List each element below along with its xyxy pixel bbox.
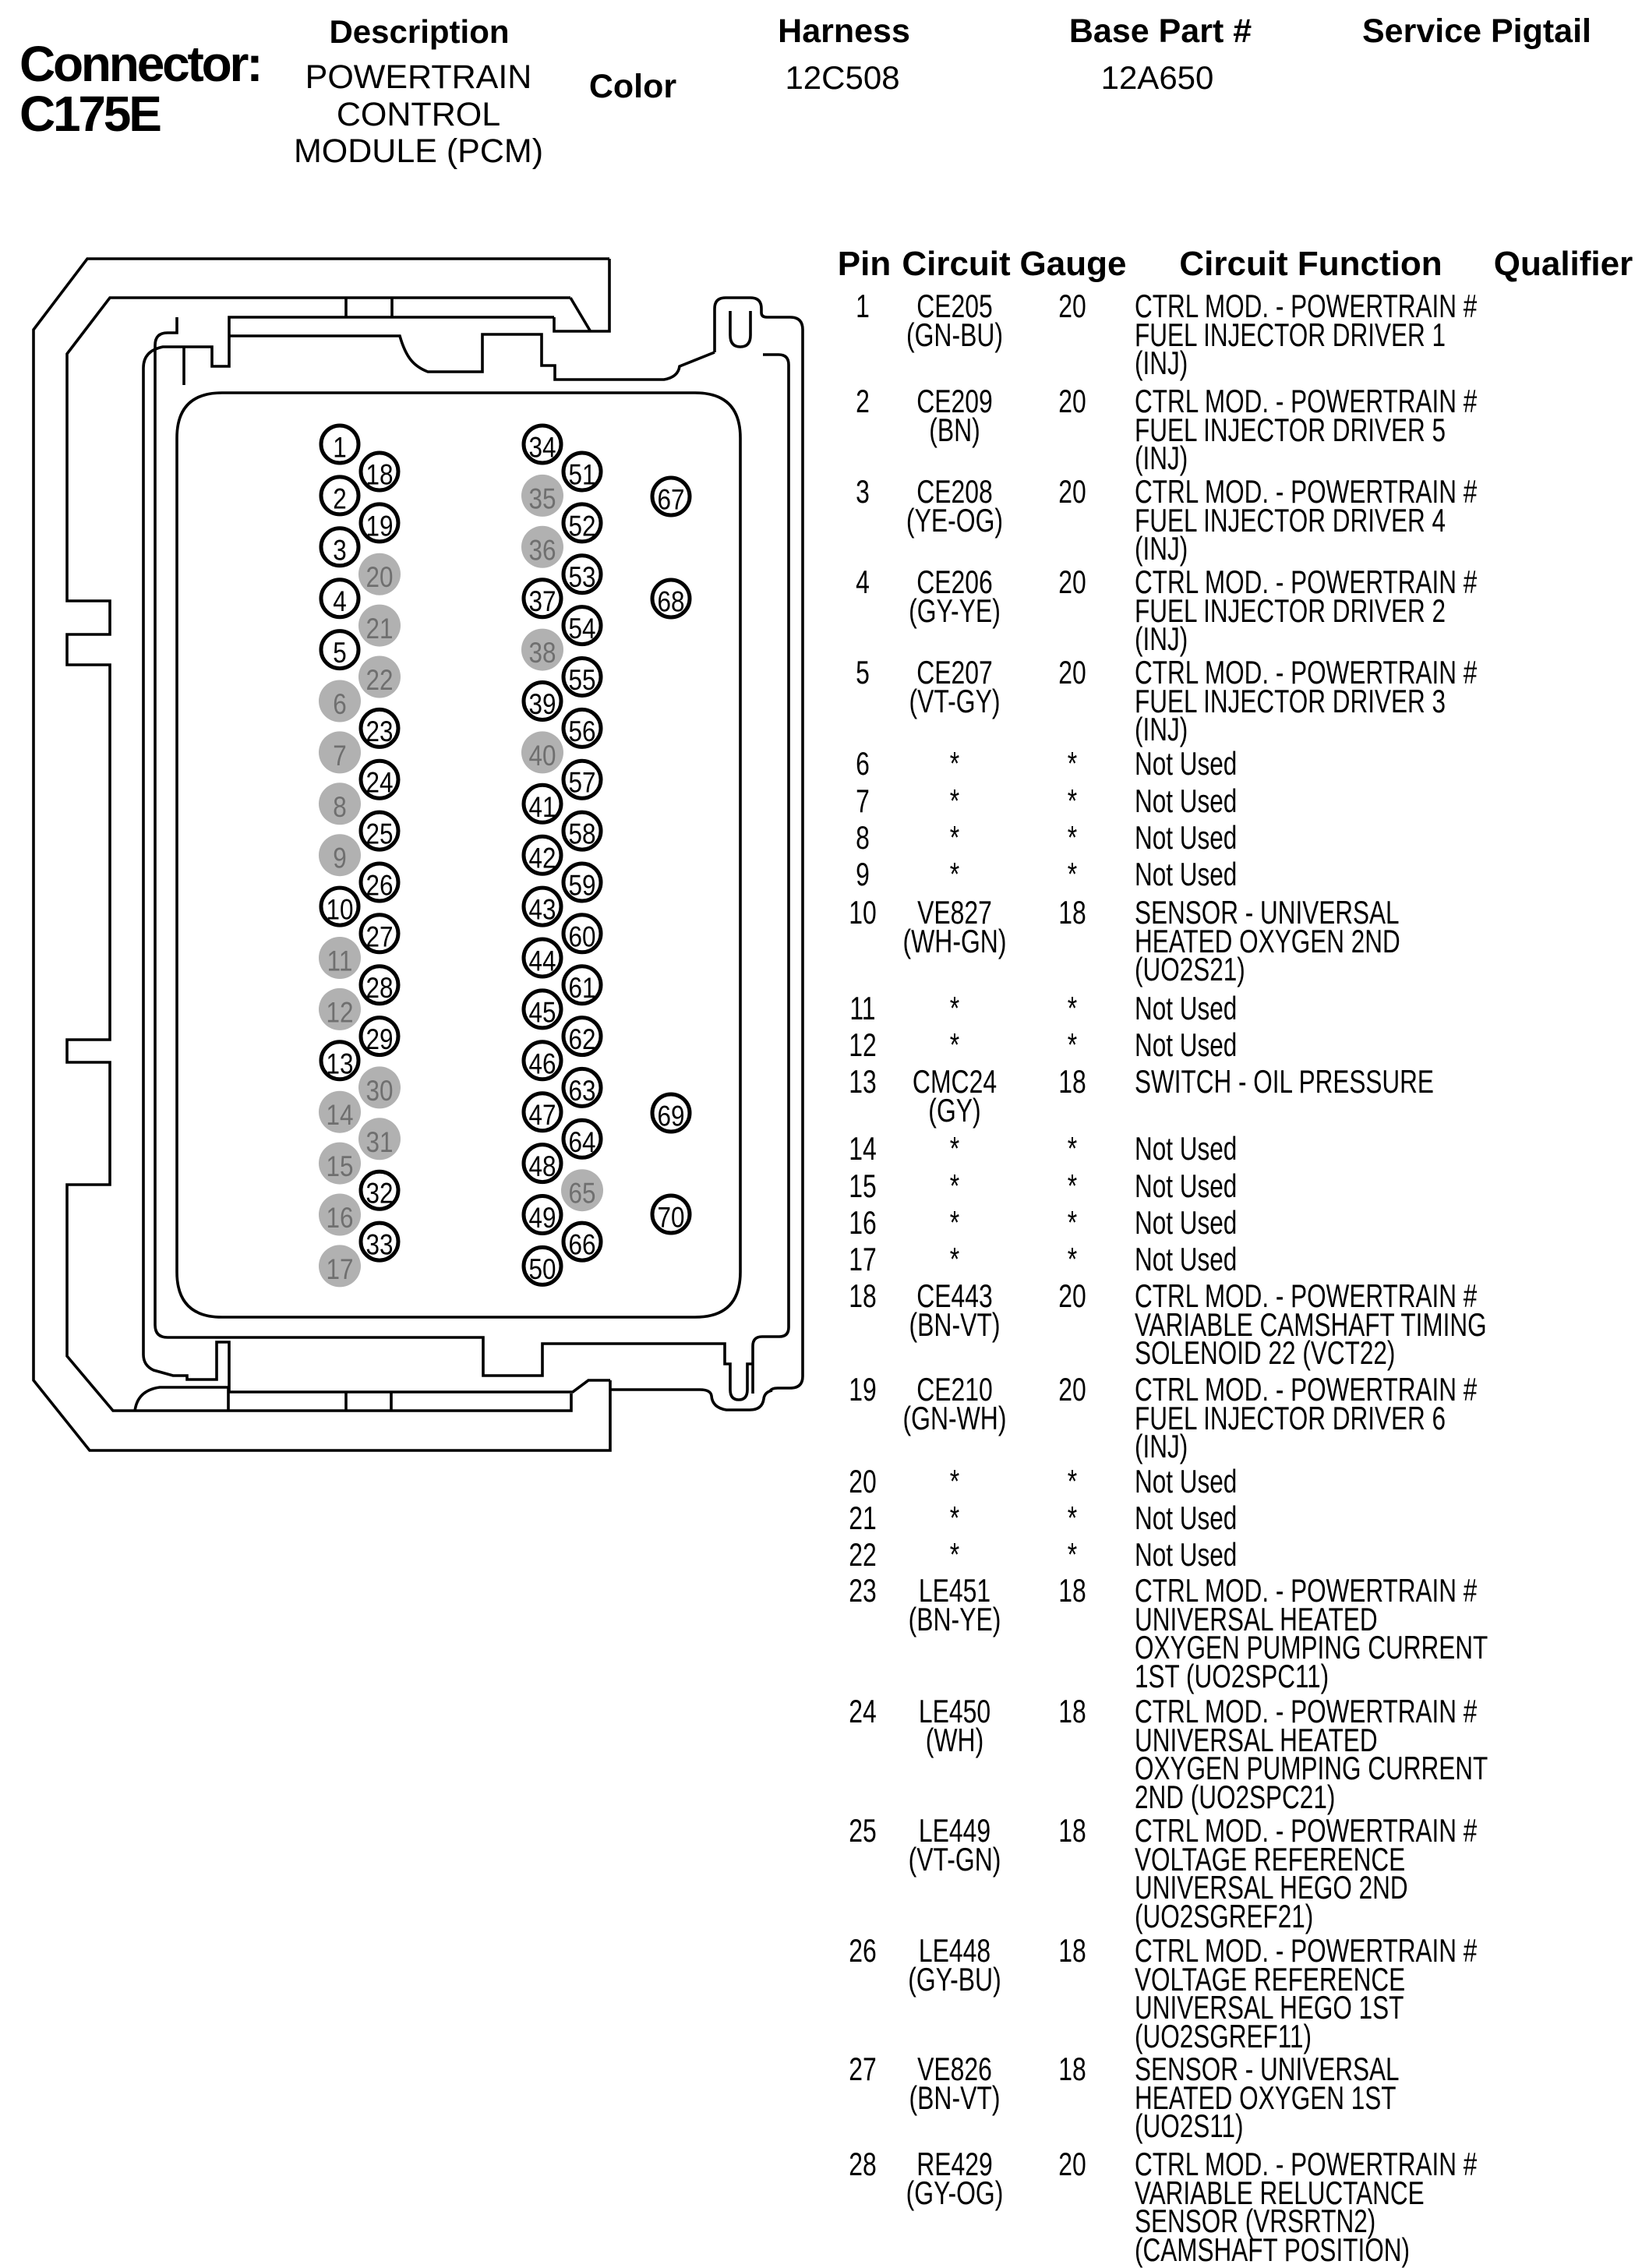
svg-text:46: 46 [529, 1048, 556, 1080]
svg-text:54: 54 [569, 613, 596, 645]
svg-text:44: 44 [529, 945, 556, 977]
svg-text:16: 16 [327, 1203, 354, 1235]
svg-text:2: 2 [333, 483, 346, 515]
svg-text:48: 48 [529, 1151, 556, 1183]
svg-text:51: 51 [569, 459, 596, 491]
svg-text:67: 67 [658, 484, 685, 516]
svg-text:31: 31 [366, 1126, 394, 1158]
svg-text:26: 26 [366, 870, 394, 902]
svg-text:34: 34 [529, 432, 556, 464]
svg-text:52: 52 [569, 510, 596, 542]
svg-text:10: 10 [327, 894, 354, 926]
svg-text:53: 53 [569, 562, 596, 594]
svg-text:70: 70 [658, 1202, 685, 1234]
svg-text:41: 41 [529, 791, 556, 823]
svg-text:42: 42 [529, 843, 556, 874]
svg-text:38: 38 [529, 638, 556, 669]
svg-text:24: 24 [366, 767, 394, 799]
svg-text:59: 59 [569, 870, 596, 902]
svg-text:43: 43 [529, 894, 556, 926]
svg-text:37: 37 [529, 586, 556, 618]
svg-text:32: 32 [366, 1178, 394, 1210]
svg-text:6: 6 [333, 689, 346, 721]
svg-text:60: 60 [569, 921, 596, 953]
svg-text:45: 45 [529, 997, 556, 1029]
svg-text:66: 66 [569, 1229, 596, 1261]
svg-text:13: 13 [327, 1048, 354, 1080]
svg-text:17: 17 [327, 1254, 354, 1286]
svg-text:62: 62 [569, 1024, 596, 1056]
svg-text:3: 3 [333, 535, 346, 567]
svg-text:68: 68 [658, 586, 685, 618]
svg-text:20: 20 [366, 562, 394, 594]
svg-text:58: 58 [569, 818, 596, 850]
svg-text:22: 22 [366, 665, 394, 697]
svg-text:36: 36 [529, 535, 556, 567]
svg-text:55: 55 [569, 665, 596, 697]
svg-text:27: 27 [366, 921, 394, 953]
svg-text:11: 11 [327, 945, 353, 977]
svg-text:63: 63 [569, 1076, 596, 1108]
svg-text:35: 35 [529, 483, 556, 515]
svg-text:1: 1 [333, 432, 346, 464]
svg-text:39: 39 [529, 689, 556, 721]
svg-text:7: 7 [333, 740, 346, 772]
svg-text:4: 4 [333, 586, 346, 618]
svg-text:29: 29 [366, 1024, 394, 1056]
svg-text:28: 28 [366, 973, 394, 1005]
svg-text:19: 19 [366, 510, 394, 542]
svg-text:40: 40 [529, 740, 556, 772]
svg-text:25: 25 [366, 818, 394, 850]
svg-text:12: 12 [327, 997, 354, 1029]
svg-text:49: 49 [529, 1203, 556, 1235]
svg-text:50: 50 [529, 1254, 556, 1286]
svg-text:65: 65 [569, 1178, 596, 1210]
svg-text:57: 57 [569, 767, 596, 799]
svg-text:21: 21 [366, 613, 394, 645]
svg-text:56: 56 [569, 716, 596, 748]
svg-text:8: 8 [333, 791, 346, 823]
svg-text:64: 64 [569, 1126, 596, 1158]
svg-text:69: 69 [658, 1100, 685, 1132]
svg-text:15: 15 [327, 1151, 354, 1183]
svg-text:47: 47 [529, 1100, 556, 1132]
svg-text:33: 33 [366, 1229, 394, 1261]
svg-text:23: 23 [366, 716, 394, 748]
svg-text:30: 30 [366, 1076, 394, 1108]
svg-text:9: 9 [333, 843, 346, 874]
svg-text:18: 18 [366, 459, 394, 491]
svg-text:61: 61 [569, 973, 596, 1005]
svg-text:5: 5 [333, 638, 346, 669]
svg-text:14: 14 [327, 1100, 354, 1132]
